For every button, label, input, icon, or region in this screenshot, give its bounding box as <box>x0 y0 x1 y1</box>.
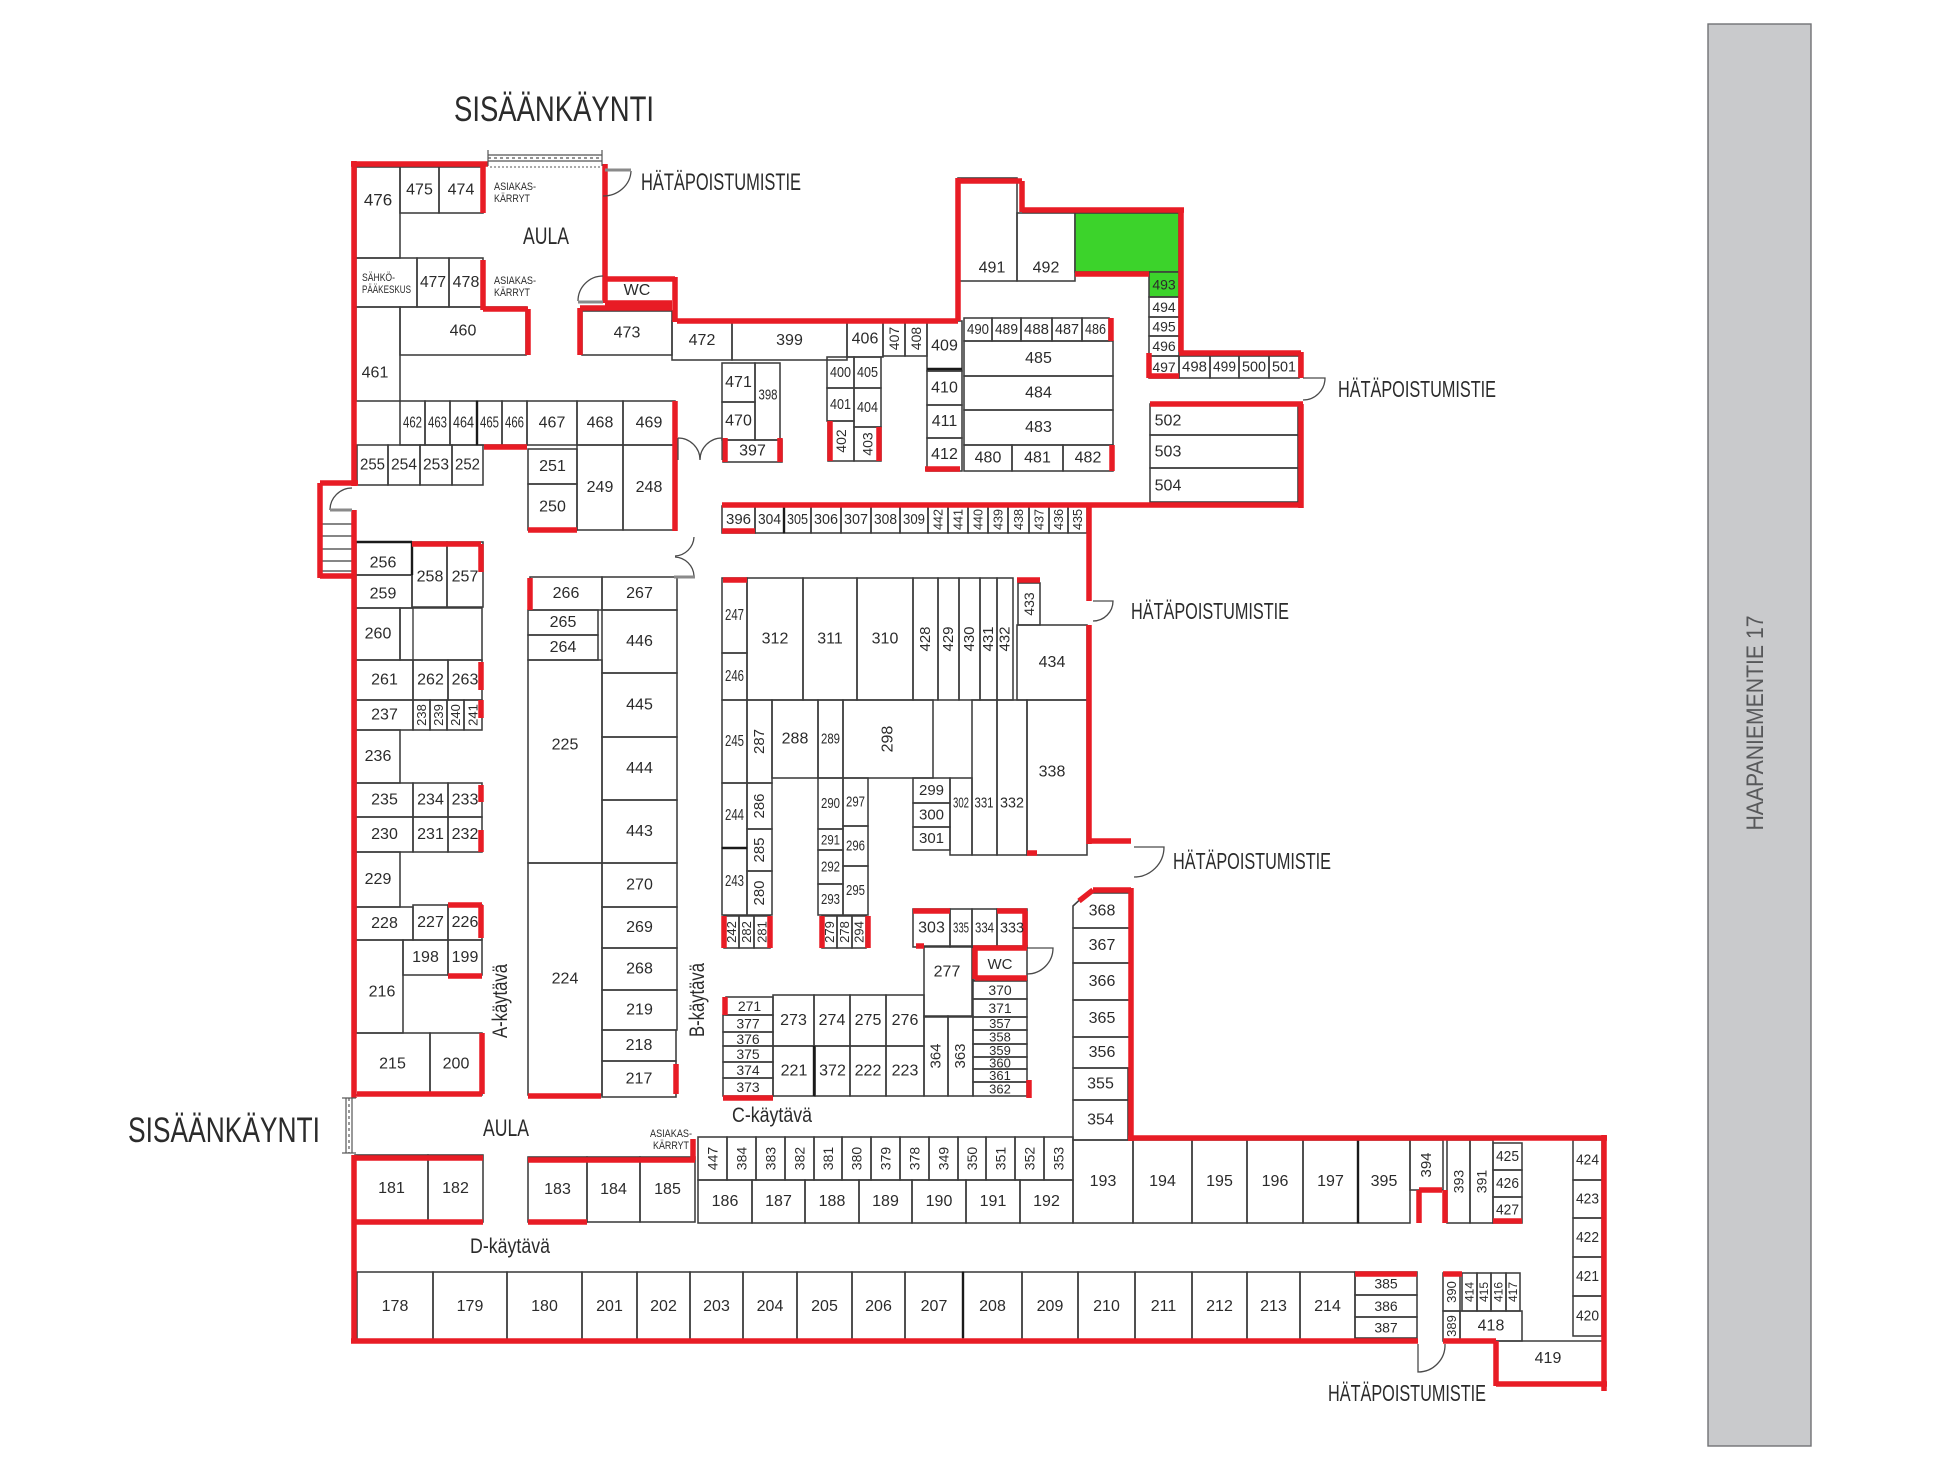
svg-text:279: 279 <box>822 921 837 943</box>
svg-text:417: 417 <box>1506 1282 1520 1302</box>
svg-text:412: 412 <box>931 446 958 463</box>
svg-text:271: 271 <box>738 998 762 1014</box>
svg-text:432: 432 <box>997 626 1014 651</box>
svg-text:298: 298 <box>880 726 897 753</box>
svg-text:231: 231 <box>417 826 444 843</box>
svg-text:485: 485 <box>1025 350 1052 367</box>
svg-text:419: 419 <box>1535 1350 1562 1367</box>
svg-text:409: 409 <box>931 338 958 355</box>
svg-text:475: 475 <box>406 182 433 199</box>
svg-text:259: 259 <box>370 586 397 603</box>
svg-text:471: 471 <box>725 374 752 391</box>
svg-text:261: 261 <box>371 672 398 689</box>
svg-text:233: 233 <box>452 792 479 809</box>
svg-text:480: 480 <box>975 450 1002 467</box>
svg-text:445: 445 <box>626 697 653 714</box>
svg-text:290: 290 <box>821 795 840 812</box>
svg-text:500: 500 <box>1242 359 1266 376</box>
svg-text:WC: WC <box>988 956 1013 973</box>
svg-text:262: 262 <box>417 672 444 689</box>
svg-text:184: 184 <box>600 1181 627 1198</box>
svg-text:438: 438 <box>1011 509 1026 530</box>
svg-text:230: 230 <box>371 826 398 843</box>
svg-text:194: 194 <box>1149 1173 1176 1190</box>
svg-text:486: 486 <box>1085 321 1106 338</box>
svg-text:287: 287 <box>751 729 768 754</box>
svg-text:380: 380 <box>849 1147 865 1171</box>
svg-text:376: 376 <box>736 1031 760 1047</box>
svg-text:211: 211 <box>1151 1298 1177 1315</box>
svg-text:SISÄÄNKÄYNTI: SISÄÄNKÄYNTI <box>454 90 654 129</box>
svg-text:ASIAKAS-: ASIAKAS- <box>494 275 536 287</box>
svg-text:429: 429 <box>940 626 957 651</box>
svg-text:383: 383 <box>763 1147 779 1171</box>
svg-text:496: 496 <box>1152 338 1176 354</box>
svg-text:303: 303 <box>918 920 945 937</box>
svg-text:311: 311 <box>817 631 843 648</box>
svg-text:240: 240 <box>448 704 463 726</box>
svg-text:484: 484 <box>1025 385 1052 402</box>
svg-text:SISÄÄNKÄYNTI: SISÄÄNKÄYNTI <box>128 1111 320 1150</box>
svg-text:468: 468 <box>587 415 614 432</box>
svg-text:469: 469 <box>636 415 663 432</box>
svg-text:209: 209 <box>1037 1298 1064 1315</box>
svg-text:374: 374 <box>736 1062 760 1078</box>
svg-text:KÄRRYT: KÄRRYT <box>653 1140 689 1152</box>
svg-text:221: 221 <box>781 1063 808 1080</box>
svg-text:441: 441 <box>951 509 966 530</box>
svg-text:214: 214 <box>1314 1298 1341 1315</box>
svg-text:491: 491 <box>979 260 1006 277</box>
svg-text:331: 331 <box>975 795 994 812</box>
svg-text:219: 219 <box>626 1002 653 1019</box>
svg-text:461: 461 <box>362 365 389 382</box>
svg-text:276: 276 <box>892 1012 919 1029</box>
svg-text:308: 308 <box>874 511 897 528</box>
svg-text:353: 353 <box>1051 1147 1067 1171</box>
svg-text:362: 362 <box>989 1082 1011 1097</box>
svg-text:212: 212 <box>1206 1298 1233 1315</box>
svg-text:193: 193 <box>1090 1173 1117 1190</box>
svg-text:305: 305 <box>787 511 808 528</box>
svg-text:477: 477 <box>420 274 446 291</box>
svg-text:HÄTÄPOISTUMISTIE: HÄTÄPOISTUMISTIE <box>1173 848 1331 874</box>
svg-text:234: 234 <box>417 792 444 809</box>
svg-text:442: 442 <box>931 509 946 530</box>
svg-text:428: 428 <box>917 626 934 651</box>
svg-text:385: 385 <box>1374 1276 1398 1292</box>
svg-text:415: 415 <box>1477 1282 1491 1302</box>
svg-text:467: 467 <box>539 415 566 432</box>
svg-text:408: 408 <box>908 327 924 351</box>
svg-text:236: 236 <box>365 748 392 765</box>
svg-text:242: 242 <box>724 921 739 943</box>
svg-text:266: 266 <box>553 585 580 602</box>
svg-text:478: 478 <box>453 274 480 291</box>
svg-text:216: 216 <box>369 984 396 1001</box>
svg-text:372: 372 <box>819 1063 846 1080</box>
svg-text:355: 355 <box>1087 1076 1114 1093</box>
svg-text:183: 183 <box>544 1181 571 1198</box>
svg-text:239: 239 <box>431 704 446 726</box>
svg-text:277: 277 <box>934 964 961 981</box>
svg-text:KÄRRYT: KÄRRYT <box>494 287 530 299</box>
svg-text:263: 263 <box>452 672 479 689</box>
svg-text:440: 440 <box>971 509 986 530</box>
svg-text:399: 399 <box>776 332 803 349</box>
svg-text:436: 436 <box>1051 509 1066 530</box>
svg-text:224: 224 <box>552 971 579 988</box>
svg-text:256: 256 <box>370 555 397 572</box>
svg-text:465: 465 <box>480 415 499 432</box>
svg-text:365: 365 <box>1089 1010 1116 1027</box>
svg-text:235: 235 <box>371 792 398 809</box>
svg-text:202: 202 <box>650 1298 677 1315</box>
svg-text:D-käytävä: D-käytävä <box>470 1235 550 1258</box>
svg-text:229: 229 <box>365 871 392 888</box>
svg-text:297: 297 <box>846 794 865 811</box>
svg-text:394: 394 <box>1418 1152 1435 1177</box>
svg-text:275: 275 <box>855 1012 882 1029</box>
svg-text:489: 489 <box>995 321 1018 338</box>
svg-text:396: 396 <box>726 511 751 528</box>
svg-text:270: 270 <box>626 877 653 894</box>
svg-text:207: 207 <box>921 1298 948 1315</box>
svg-text:289: 289 <box>821 731 840 748</box>
svg-text:425: 425 <box>1496 1148 1519 1165</box>
svg-text:204: 204 <box>757 1298 784 1315</box>
svg-text:423: 423 <box>1576 1191 1599 1208</box>
svg-text:285: 285 <box>751 837 768 862</box>
svg-text:286: 286 <box>751 793 768 818</box>
svg-text:338: 338 <box>1039 764 1066 781</box>
svg-text:253: 253 <box>423 457 449 474</box>
svg-text:SÄHKÖ-: SÄHKÖ- <box>362 272 395 284</box>
svg-text:473: 473 <box>614 325 641 342</box>
svg-text:299: 299 <box>919 782 944 799</box>
svg-text:185: 185 <box>654 1181 681 1198</box>
svg-text:404: 404 <box>857 399 878 416</box>
svg-text:382: 382 <box>792 1147 808 1171</box>
svg-text:435: 435 <box>1070 509 1085 530</box>
svg-text:497: 497 <box>1152 359 1176 375</box>
svg-text:244: 244 <box>725 807 744 824</box>
svg-text:218: 218 <box>626 1037 653 1054</box>
svg-text:430: 430 <box>961 626 978 651</box>
svg-text:398: 398 <box>759 387 778 404</box>
svg-text:C-käytävä: C-käytävä <box>732 1104 812 1127</box>
svg-text:463: 463 <box>428 415 447 432</box>
svg-text:335: 335 <box>953 920 969 937</box>
svg-text:192: 192 <box>1033 1193 1060 1210</box>
svg-text:223: 223 <box>892 1063 919 1080</box>
svg-text:366: 366 <box>1089 973 1116 990</box>
svg-text:267: 267 <box>626 585 653 602</box>
svg-text:482: 482 <box>1075 450 1102 467</box>
svg-text:264: 264 <box>550 639 577 656</box>
svg-text:437: 437 <box>1032 509 1047 530</box>
svg-text:354: 354 <box>1087 1112 1114 1129</box>
svg-text:333: 333 <box>1000 920 1024 937</box>
svg-text:HÄTÄPOISTUMISTIE: HÄTÄPOISTUMISTIE <box>1328 1380 1486 1406</box>
svg-text:190: 190 <box>926 1193 953 1210</box>
svg-text:ASIAKAS-: ASIAKAS- <box>494 181 536 193</box>
svg-text:487: 487 <box>1055 321 1079 338</box>
svg-text:196: 196 <box>1262 1173 1289 1190</box>
svg-text:391: 391 <box>1474 1170 1490 1194</box>
svg-text:288: 288 <box>782 731 809 748</box>
svg-text:201: 201 <box>596 1298 623 1315</box>
svg-text:421: 421 <box>1576 1268 1599 1285</box>
svg-text:439: 439 <box>991 509 1006 530</box>
svg-text:ASIAKAS-: ASIAKAS- <box>650 1128 692 1140</box>
svg-text:492: 492 <box>1033 260 1060 277</box>
svg-text:301: 301 <box>919 830 944 847</box>
svg-text:352: 352 <box>1022 1147 1038 1171</box>
svg-text:349: 349 <box>936 1147 952 1171</box>
svg-text:483: 483 <box>1025 419 1052 436</box>
svg-text:504: 504 <box>1155 478 1182 495</box>
svg-text:203: 203 <box>703 1298 730 1315</box>
svg-text:386: 386 <box>1374 1298 1398 1314</box>
svg-text:249: 249 <box>587 479 614 496</box>
svg-text:495: 495 <box>1152 319 1176 335</box>
svg-text:472: 472 <box>689 332 716 349</box>
svg-text:377: 377 <box>736 1016 760 1032</box>
svg-text:260: 260 <box>365 626 392 643</box>
svg-text:A-käytävä: A-käytävä <box>489 964 512 1038</box>
svg-text:367: 367 <box>1089 937 1116 954</box>
svg-text:215: 215 <box>379 1056 406 1073</box>
svg-text:274: 274 <box>819 1012 846 1029</box>
svg-text:488: 488 <box>1024 321 1049 338</box>
svg-text:PÄÄKESKUS: PÄÄKESKUS <box>362 284 411 296</box>
svg-text:402: 402 <box>833 429 849 453</box>
svg-text:426: 426 <box>1496 1175 1519 1192</box>
svg-text:434: 434 <box>1039 654 1066 671</box>
svg-text:410: 410 <box>931 380 958 397</box>
svg-text:269: 269 <box>626 919 653 936</box>
svg-text:258: 258 <box>417 569 444 586</box>
svg-text:AULA: AULA <box>483 1115 529 1142</box>
svg-text:433: 433 <box>1021 592 1037 616</box>
svg-text:208: 208 <box>979 1298 1006 1315</box>
svg-text:470: 470 <box>725 413 752 430</box>
svg-text:502: 502 <box>1155 413 1182 430</box>
svg-text:501: 501 <box>1272 359 1296 376</box>
svg-text:191: 191 <box>980 1193 1007 1210</box>
svg-text:217: 217 <box>626 1071 653 1088</box>
svg-text:446: 446 <box>626 633 653 650</box>
svg-text:395: 395 <box>1371 1173 1398 1190</box>
svg-text:416: 416 <box>1492 1282 1506 1302</box>
svg-text:292: 292 <box>821 859 840 876</box>
svg-text:AULA: AULA <box>523 223 569 250</box>
svg-text:294: 294 <box>852 921 867 943</box>
svg-text:393: 393 <box>1451 1170 1467 1194</box>
svg-text:427: 427 <box>1496 1202 1519 1219</box>
svg-text:245: 245 <box>725 733 744 750</box>
svg-text:300: 300 <box>919 807 944 824</box>
svg-text:200: 200 <box>443 1056 470 1073</box>
svg-text:420: 420 <box>1576 1308 1599 1325</box>
svg-text:422: 422 <box>1576 1229 1599 1246</box>
svg-text:205: 205 <box>811 1298 838 1315</box>
svg-text:389: 389 <box>1444 1315 1459 1337</box>
svg-text:222: 222 <box>855 1063 882 1080</box>
svg-text:255: 255 <box>360 457 385 474</box>
svg-text:503: 503 <box>1155 444 1182 461</box>
svg-text:400: 400 <box>830 364 851 381</box>
svg-text:476: 476 <box>364 191 392 210</box>
svg-text:397: 397 <box>739 443 766 460</box>
svg-text:182: 182 <box>442 1180 469 1197</box>
svg-text:460: 460 <box>450 323 477 340</box>
svg-text:418: 418 <box>1478 1318 1505 1335</box>
svg-text:296: 296 <box>846 838 865 855</box>
svg-text:257: 257 <box>452 569 479 586</box>
svg-text:403: 403 <box>860 432 876 456</box>
svg-text:280: 280 <box>751 880 768 905</box>
svg-text:401: 401 <box>830 396 851 413</box>
svg-text:252: 252 <box>455 457 480 474</box>
svg-text:187: 187 <box>765 1193 792 1210</box>
svg-text:306: 306 <box>814 511 838 528</box>
svg-text:179: 179 <box>457 1298 484 1315</box>
svg-text:368: 368 <box>1089 903 1116 920</box>
svg-text:225: 225 <box>552 737 579 754</box>
svg-text:254: 254 <box>391 457 417 474</box>
svg-text:474: 474 <box>448 182 475 199</box>
svg-text:WC: WC <box>624 282 651 299</box>
svg-text:464: 464 <box>453 415 474 432</box>
svg-text:371: 371 <box>988 1000 1012 1016</box>
svg-text:228: 228 <box>371 915 398 932</box>
svg-text:197: 197 <box>1317 1173 1344 1190</box>
svg-text:350: 350 <box>964 1147 980 1171</box>
svg-text:462: 462 <box>403 415 422 432</box>
svg-text:241: 241 <box>466 704 481 726</box>
svg-text:378: 378 <box>907 1147 923 1171</box>
svg-text:310: 310 <box>872 631 899 648</box>
svg-text:213: 213 <box>1260 1298 1287 1315</box>
svg-text:248: 248 <box>636 479 663 496</box>
svg-text:251: 251 <box>539 458 566 475</box>
svg-text:387: 387 <box>1374 1320 1398 1336</box>
svg-text:384: 384 <box>734 1147 750 1171</box>
svg-text:332: 332 <box>1000 795 1024 812</box>
svg-text:247: 247 <box>725 607 744 624</box>
svg-text:HÄTÄPOISTUMISTIE: HÄTÄPOISTUMISTIE <box>641 169 801 196</box>
svg-text:198: 198 <box>412 949 439 966</box>
svg-text:390: 390 <box>1444 1281 1459 1303</box>
svg-text:181: 181 <box>378 1180 405 1197</box>
svg-text:226: 226 <box>452 914 479 931</box>
svg-text:498: 498 <box>1182 359 1207 376</box>
svg-text:370: 370 <box>988 982 1012 998</box>
svg-text:278: 278 <box>837 921 852 943</box>
svg-text:411: 411 <box>932 413 958 430</box>
svg-text:186: 186 <box>712 1193 739 1210</box>
svg-text:407: 407 <box>886 327 902 351</box>
svg-text:246: 246 <box>725 668 744 685</box>
svg-text:265: 265 <box>550 614 577 631</box>
svg-text:499: 499 <box>1213 359 1236 376</box>
svg-text:B-käytävä: B-käytävä <box>686 963 709 1037</box>
svg-text:227: 227 <box>417 914 444 931</box>
svg-text:250: 250 <box>539 499 566 516</box>
svg-text:188: 188 <box>819 1193 846 1210</box>
svg-text:291: 291 <box>821 832 840 848</box>
svg-text:210: 210 <box>1093 1298 1120 1315</box>
svg-text:447: 447 <box>705 1147 721 1171</box>
svg-text:302: 302 <box>953 795 969 812</box>
svg-text:282: 282 <box>739 921 754 943</box>
svg-text:293: 293 <box>821 891 840 908</box>
svg-text:490: 490 <box>967 321 989 338</box>
svg-text:281: 281 <box>755 921 770 943</box>
svg-text:199: 199 <box>452 949 479 966</box>
svg-text:232: 232 <box>452 826 479 843</box>
svg-text:180: 180 <box>531 1298 558 1315</box>
svg-text:206: 206 <box>865 1298 892 1315</box>
svg-text:444: 444 <box>626 760 653 777</box>
svg-text:312: 312 <box>762 631 789 648</box>
svg-text:363: 363 <box>952 1043 969 1068</box>
svg-text:443: 443 <box>626 823 653 840</box>
svg-text:178: 178 <box>382 1298 409 1315</box>
svg-text:195: 195 <box>1206 1173 1233 1190</box>
svg-text:HAAPANIEMENTIE 17: HAAPANIEMENTIE 17 <box>1742 616 1769 831</box>
svg-text:373: 373 <box>736 1079 760 1095</box>
svg-text:481: 481 <box>1024 450 1051 467</box>
svg-text:494: 494 <box>1152 299 1176 315</box>
svg-text:381: 381 <box>820 1147 836 1171</box>
svg-text:295: 295 <box>846 882 865 899</box>
svg-text:493: 493 <box>1152 277 1176 293</box>
svg-text:HÄTÄPOISTUMISTIE: HÄTÄPOISTUMISTIE <box>1338 376 1496 402</box>
svg-text:356: 356 <box>1089 1044 1116 1061</box>
svg-text:379: 379 <box>878 1147 894 1171</box>
svg-text:243: 243 <box>725 873 744 890</box>
svg-text:304: 304 <box>758 511 781 528</box>
svg-text:237: 237 <box>371 707 398 724</box>
svg-text:HÄTÄPOISTUMISTIE: HÄTÄPOISTUMISTIE <box>1131 598 1289 624</box>
svg-text:405: 405 <box>857 364 878 381</box>
svg-text:351: 351 <box>993 1147 1009 1171</box>
svg-text:364: 364 <box>928 1043 945 1068</box>
svg-text:466: 466 <box>505 415 524 432</box>
svg-text:189: 189 <box>872 1193 899 1210</box>
svg-text:406: 406 <box>852 331 879 348</box>
svg-text:273: 273 <box>780 1012 807 1029</box>
svg-text:431: 431 <box>980 626 997 651</box>
svg-text:375: 375 <box>736 1046 760 1062</box>
svg-text:238: 238 <box>414 704 429 726</box>
svg-text:268: 268 <box>626 961 653 978</box>
svg-text:414: 414 <box>1463 1282 1477 1302</box>
svg-text:334: 334 <box>975 920 994 937</box>
svg-text:309: 309 <box>903 511 925 528</box>
svg-text:424: 424 <box>1576 1152 1599 1169</box>
svg-text:KÄRRYT: KÄRRYT <box>494 193 530 205</box>
svg-text:307: 307 <box>844 511 868 528</box>
